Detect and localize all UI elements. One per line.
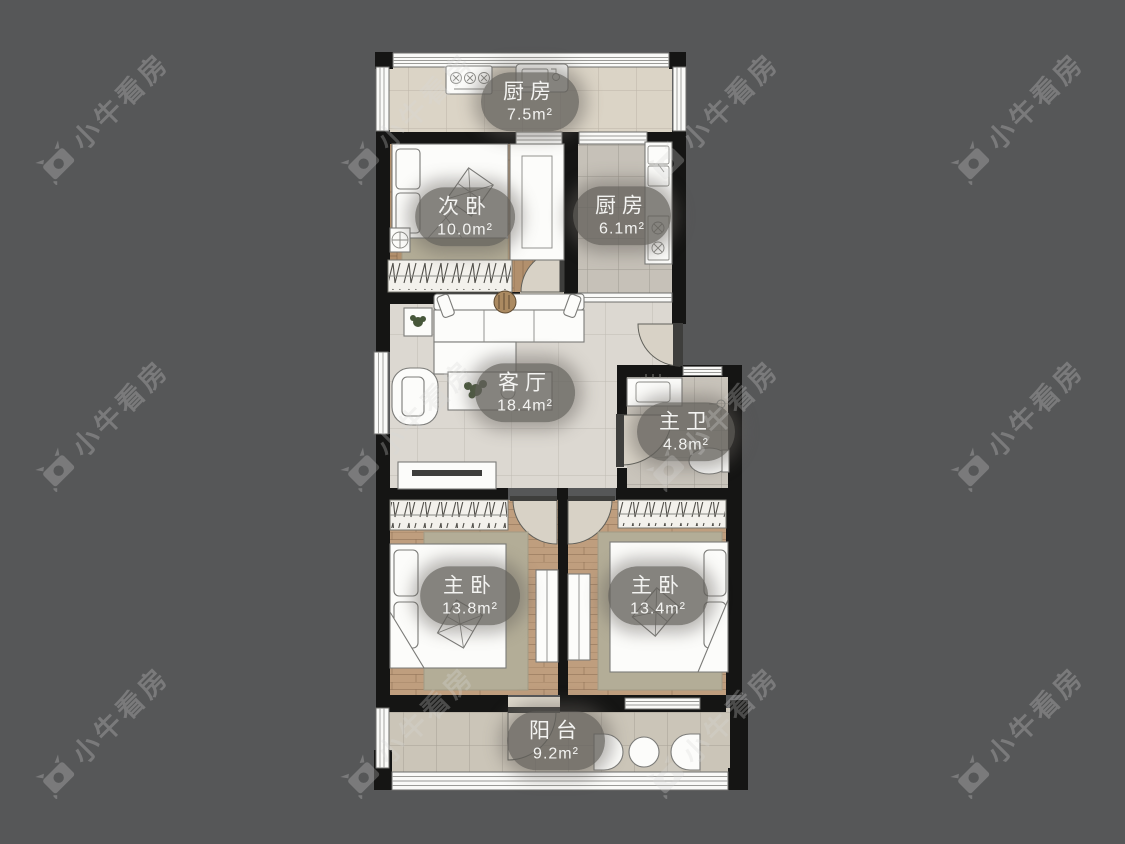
room-label-master-right: 主卧 13.4m² (608, 566, 708, 625)
room-label-living-room: 客厅 18.4m² (475, 363, 575, 422)
window-balcony-left (376, 708, 389, 768)
side-table (404, 308, 432, 336)
watermark-text: 小牛看房 (62, 42, 177, 157)
wardrobe-master-left (390, 500, 508, 530)
basket-icon (494, 291, 516, 313)
bull-logo-icon (33, 445, 81, 493)
room-area: 10.0m² (437, 221, 493, 239)
room-label-master-bath: 主卫 4.8m² (637, 402, 735, 461)
room-area: 7.5m² (503, 106, 557, 124)
room-name: 厨房 (503, 80, 557, 104)
room-area: 9.2m² (529, 745, 583, 763)
room-name: 次卧 (437, 195, 493, 219)
window-master-right (625, 698, 700, 709)
wardrobe-second (388, 260, 512, 292)
room-label-kitchen: 厨房 6.1m² (573, 186, 671, 245)
room-area: 18.4m² (497, 397, 553, 415)
window-bath (683, 367, 722, 376)
watermark: 小牛看房 (31, 349, 177, 495)
room-name: 主卧 (630, 574, 686, 598)
watermark: 小牛看房 (31, 42, 177, 188)
radiator-icon (390, 228, 410, 252)
watermark-text: 小牛看房 (977, 349, 1092, 464)
room-label-kitchen-top: 厨房 7.5m² (481, 72, 579, 131)
room-name: 阳台 (529, 719, 583, 743)
room-label-bedroom-second: 次卧 10.0m² (415, 187, 515, 246)
bath-sink (627, 374, 682, 406)
watermark: 小牛看房 (946, 349, 1092, 495)
bull-logo-icon (948, 138, 996, 186)
floorplan-canvas: 厨房 7.5m² 次卧 10.0m² 厨房 6.1m² 客厅 18.4m² 主卫… (0, 0, 1125, 844)
watermark-text: 小牛看房 (977, 42, 1092, 157)
wardrobe-master-right (618, 500, 726, 528)
balcony-railing (392, 772, 728, 790)
room-label-balcony: 阳台 9.2m² (507, 711, 605, 770)
room-name: 厨房 (595, 194, 649, 218)
window-living-left (374, 352, 388, 434)
bull-logo-icon (948, 752, 996, 800)
bull-logo-icon (33, 138, 81, 186)
balcony-furniture (594, 734, 700, 770)
room-area: 4.8m² (659, 436, 713, 454)
bull-logo-icon (33, 752, 81, 800)
window-top-right (673, 67, 686, 131)
room-name: 主卫 (659, 410, 713, 434)
room-area: 13.8m² (442, 600, 498, 618)
watermark: 小牛看房 (946, 42, 1092, 188)
window-top-left (376, 67, 389, 131)
room-name: 主卧 (442, 574, 498, 598)
watermark: 小牛看房 (31, 656, 177, 802)
room-area: 13.4m² (630, 600, 686, 618)
room-name: 客厅 (497, 371, 553, 395)
closet-master-left (536, 570, 558, 662)
armchair (392, 368, 438, 425)
cabinet-second (510, 144, 564, 260)
tv-stand (398, 462, 496, 489)
window-bedroom-second (516, 132, 562, 144)
window-kitchen (579, 132, 647, 144)
kitchen-sliding-door (578, 293, 672, 302)
round-basin-icon (629, 737, 659, 767)
room-area: 6.1m² (595, 220, 649, 238)
watermark-text: 小牛看房 (62, 656, 177, 771)
bull-logo-icon (948, 445, 996, 493)
closet-master-right (568, 574, 590, 660)
room-label-master-left: 主卧 13.8m² (420, 566, 520, 625)
watermark-text: 小牛看房 (977, 656, 1092, 771)
watermark: 小牛看房 (946, 656, 1092, 802)
watermark-text: 小牛看房 (62, 349, 177, 464)
